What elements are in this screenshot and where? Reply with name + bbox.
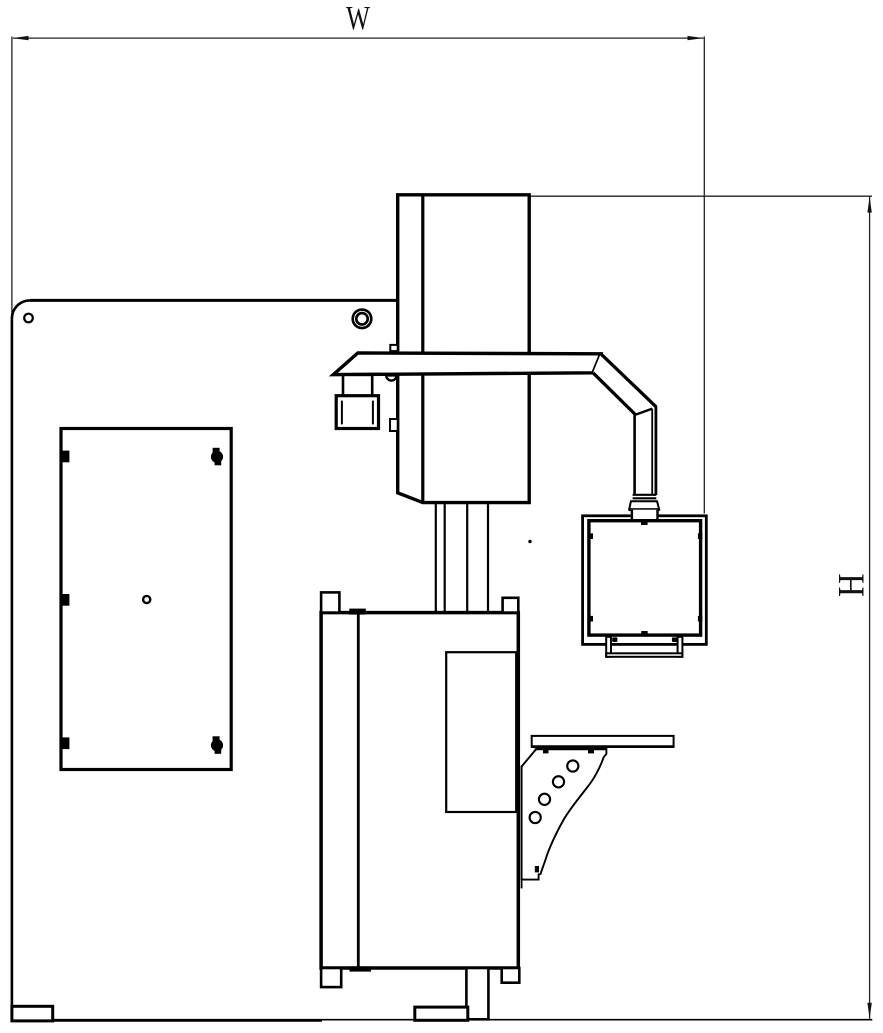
svg-text:W: W: [346, 1, 370, 37]
svg-text:H: H: [830, 573, 872, 596]
